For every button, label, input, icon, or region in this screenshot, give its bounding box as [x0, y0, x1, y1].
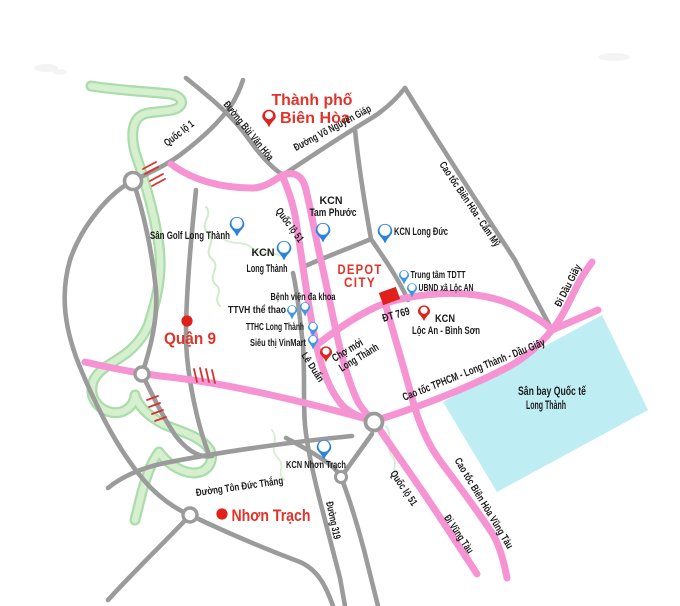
- svg-text:CITY: CITY: [344, 275, 376, 290]
- svg-text:Bệnh viện đa khoa: Bệnh viện đa khoa: [271, 291, 336, 303]
- svg-text:Nhơn Trạch: Nhơn Trạch: [232, 507, 311, 525]
- svg-text:Long Thành: Long Thành: [526, 400, 566, 412]
- svg-text:Tam Phước: Tam Phước: [310, 207, 357, 219]
- svg-text:Thành phố: Thành phố: [272, 92, 353, 109]
- svg-text:Siêu thị VinMart: Siêu thị VinMart: [250, 337, 306, 349]
- svg-text:Long Thành: Long Thành: [247, 263, 288, 275]
- svg-text:KCN: KCN: [435, 313, 455, 325]
- svg-text:KCN Nhơn Trạch: KCN Nhơn Trạch: [286, 459, 346, 471]
- svg-text:KCN: KCN: [252, 247, 275, 259]
- svg-text:KCN Long Đức: KCN Long Đức: [394, 226, 448, 238]
- svg-text:Sân bay Quốc tế: Sân bay Quốc tế: [518, 386, 586, 398]
- svg-text:Trung tâm TDTT: Trung tâm TDTT: [411, 269, 466, 281]
- svg-text:Lộc An - Bình Sơn: Lộc An - Bình Sơn: [412, 325, 480, 337]
- svg-text:Quận 9: Quận 9: [164, 330, 216, 348]
- svg-text:TTHC Long Thành: TTHC Long Thành: [246, 321, 304, 333]
- svg-text:Sân Golf Long Thành: Sân Golf Long Thành: [150, 230, 230, 242]
- svg-text:UBND xã Lộc AN: UBND xã Lộc AN: [419, 282, 474, 294]
- svg-text:KCN: KCN: [320, 195, 343, 207]
- svg-text:TTVH thể thao: TTVH thể thao: [228, 304, 286, 316]
